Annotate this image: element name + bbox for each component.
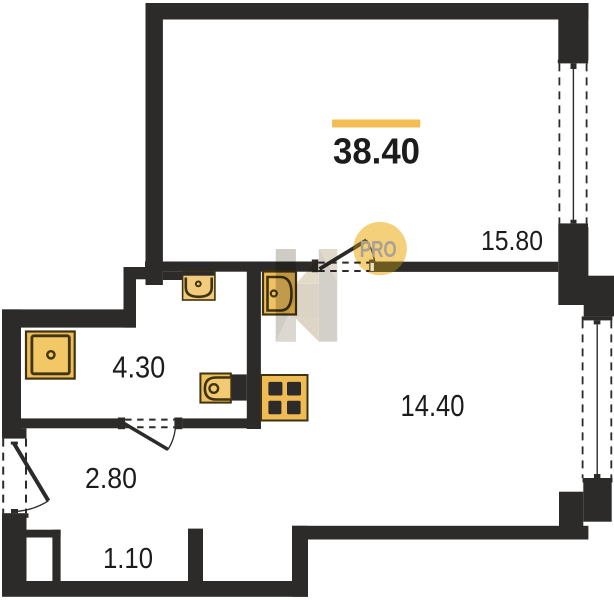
svg-text:15.80: 15.80 bbox=[481, 225, 543, 256]
svg-text:1.10: 1.10 bbox=[103, 543, 153, 575]
svg-text:38.40: 38.40 bbox=[333, 131, 420, 172]
svg-text:PRO: PRO bbox=[360, 236, 397, 262]
svg-text:2.80: 2.80 bbox=[85, 463, 137, 495]
svg-text:14.40: 14.40 bbox=[401, 389, 465, 423]
svg-text:4.30: 4.30 bbox=[112, 351, 165, 385]
